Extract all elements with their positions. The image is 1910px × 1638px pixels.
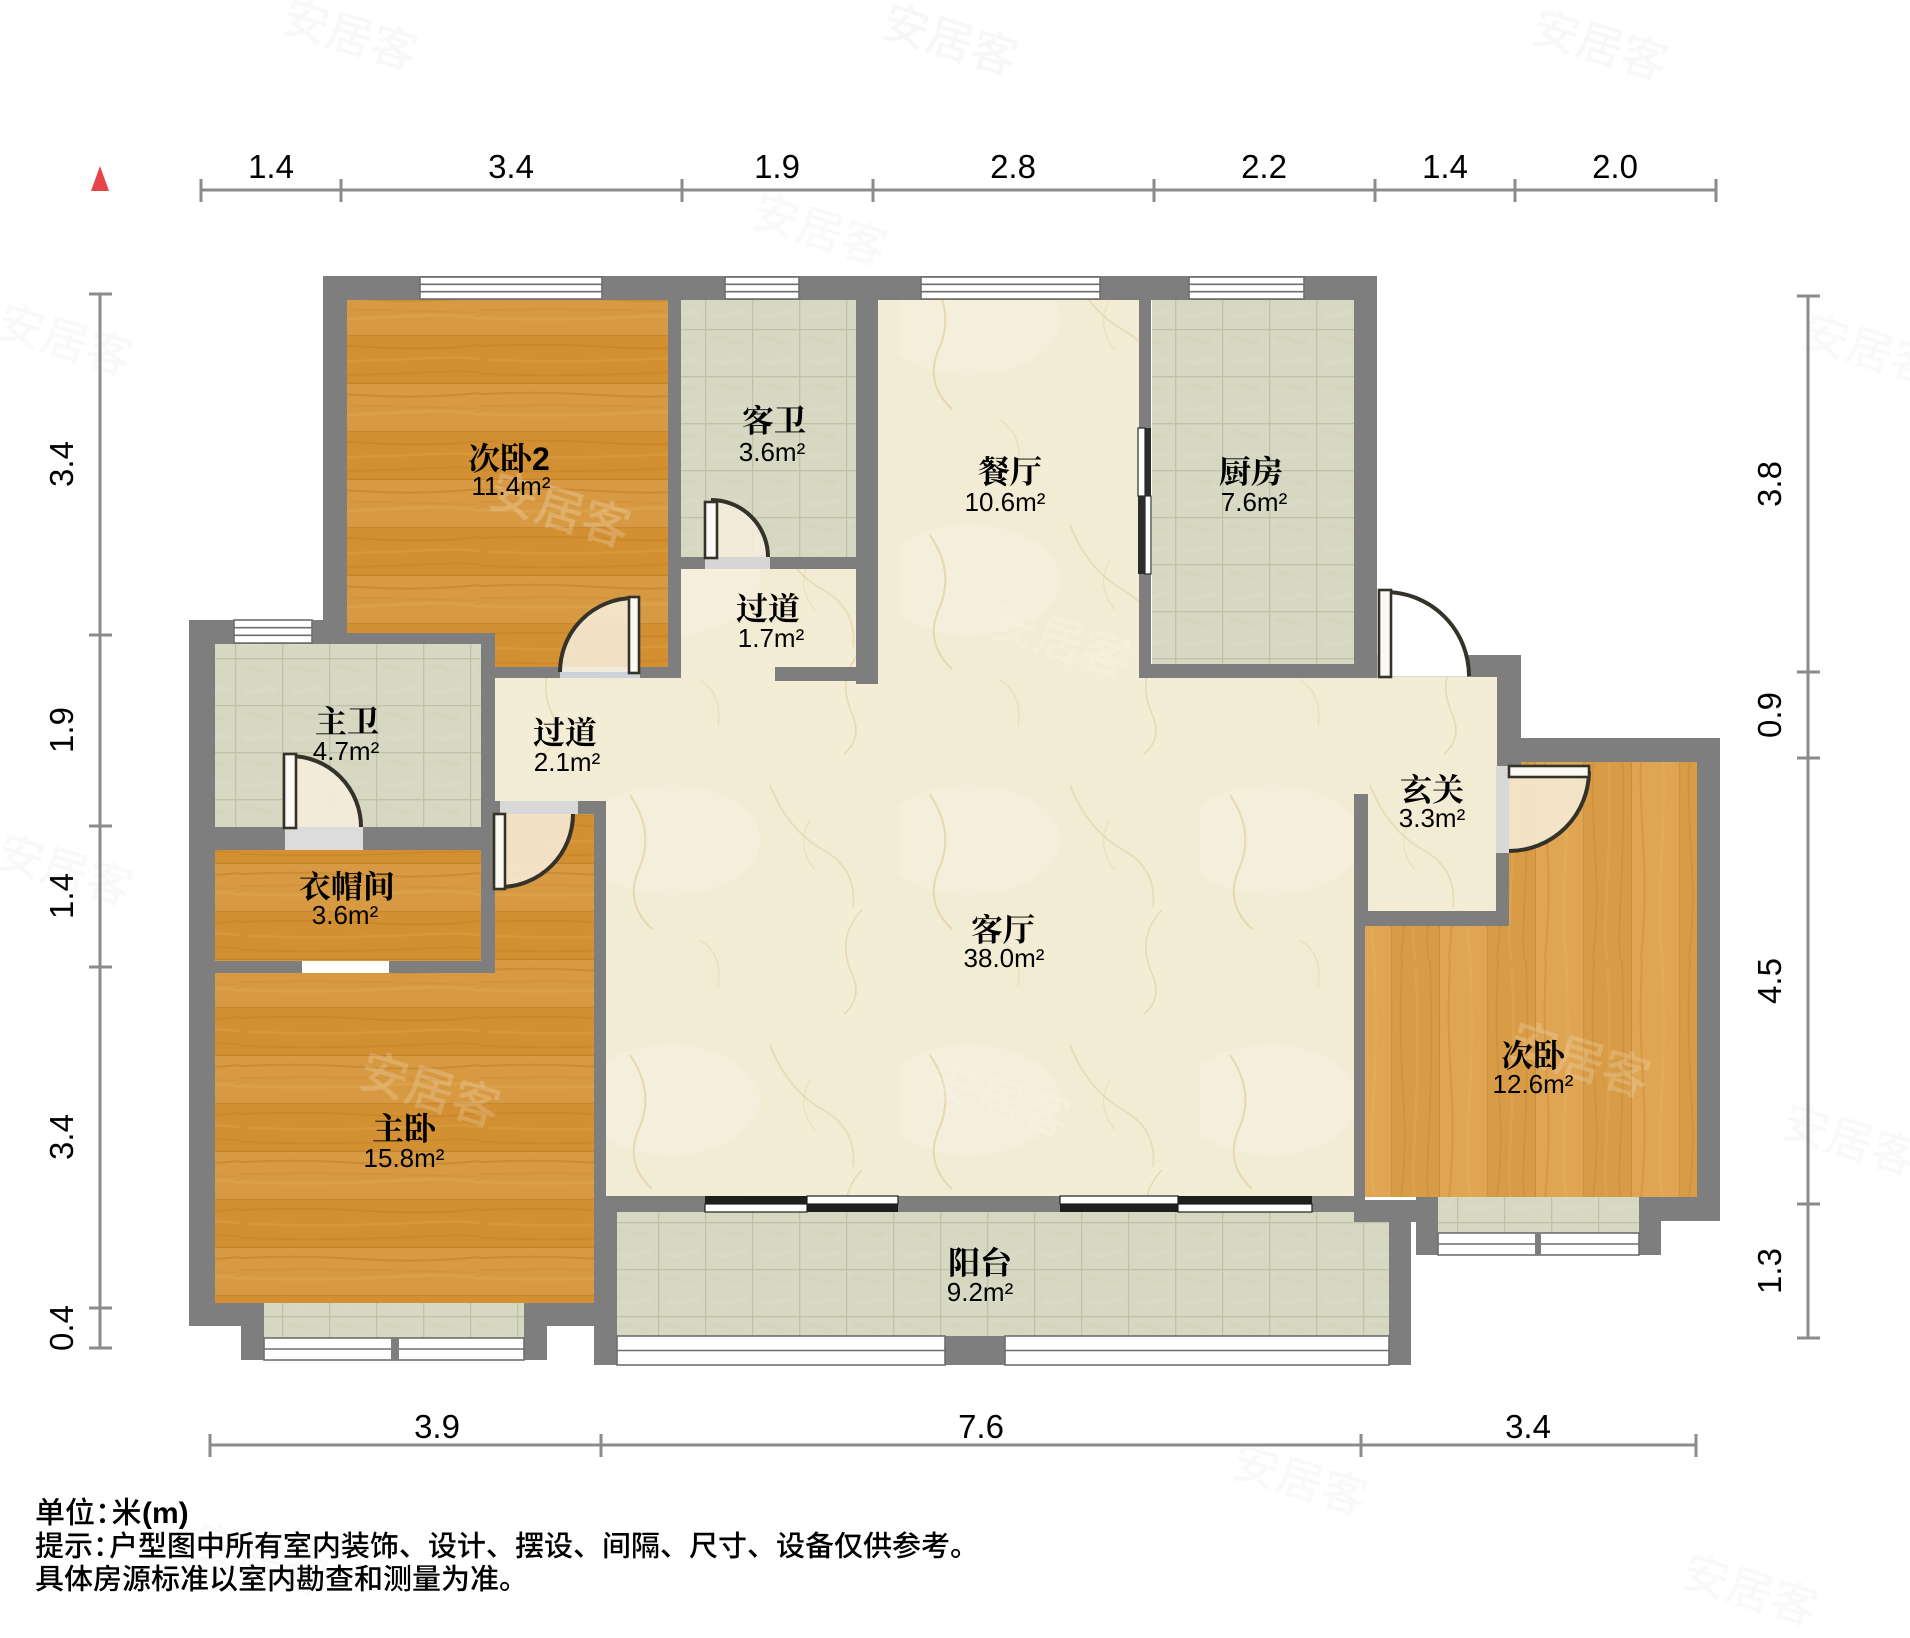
svg-text:3.4: 3.4 (43, 441, 80, 487)
svg-text:3.4: 3.4 (488, 148, 534, 185)
svg-text:2.0: 2.0 (1592, 148, 1638, 185)
svg-text:3.8: 3.8 (1751, 461, 1788, 507)
svg-text:1.9: 1.9 (43, 707, 80, 753)
svg-text:12.6m²: 12.6m² (1493, 1069, 1574, 1099)
svg-text:1.9: 1.9 (754, 148, 800, 185)
svg-text:0.9: 0.9 (1751, 692, 1788, 738)
svg-text:4.7m²: 4.7m² (313, 736, 380, 766)
svg-text:2.1m²: 2.1m² (534, 747, 601, 777)
svg-text:9.2m²: 9.2m² (947, 1277, 1014, 1307)
svg-text:15.8m²: 15.8m² (364, 1143, 445, 1173)
svg-text:7.6: 7.6 (958, 1408, 1004, 1445)
svg-text:3.9: 3.9 (414, 1408, 460, 1445)
svg-text:(m): (m) (142, 1497, 189, 1530)
svg-text:38.0m²: 38.0m² (964, 943, 1045, 973)
svg-text:7.6m²: 7.6m² (1221, 487, 1288, 517)
svg-text:1.4: 1.4 (248, 148, 294, 185)
svg-text:11.4m²: 11.4m² (472, 471, 551, 501)
svg-text:10.6m²: 10.6m² (965, 487, 1046, 517)
svg-text:3.6m²: 3.6m² (312, 900, 379, 930)
svg-text:1.4: 1.4 (1422, 148, 1468, 185)
svg-text:4.5: 4.5 (1751, 958, 1788, 1004)
svg-text:0.4: 0.4 (43, 1305, 80, 1351)
svg-text:1.3: 1.3 (1751, 1248, 1788, 1294)
svg-text:2.2: 2.2 (1241, 148, 1287, 185)
svg-text:3.3m²: 3.3m² (1399, 803, 1466, 833)
svg-text:3.4: 3.4 (43, 1114, 80, 1160)
svg-text:3.6m²: 3.6m² (739, 437, 806, 467)
svg-text:1.7m²: 1.7m² (738, 623, 805, 653)
svg-text:2.8: 2.8 (990, 148, 1036, 185)
svg-text:3.4: 3.4 (1505, 1408, 1551, 1445)
